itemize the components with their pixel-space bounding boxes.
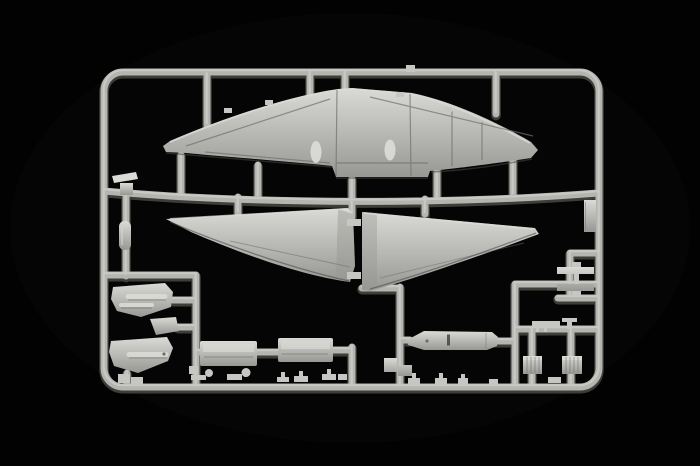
box-right-top-face [562, 356, 582, 360]
belly-panel: Long belly panel [407, 331, 498, 350]
door-lower-ridge [127, 352, 169, 357]
box-part-left: Ribbed box part (left) [523, 356, 542, 374]
left-block-part [120, 183, 133, 195]
box-part-right: Ribbed box part (right) [562, 356, 582, 374]
sprue-photo: Sprue frame and runners Runner junction … [0, 0, 700, 466]
flap-right-highlight [281, 341, 330, 349]
flap-right: Rectangular flap part (right) [278, 338, 333, 362]
flap-left: Rectangular flap part (left) [200, 341, 257, 366]
belly-panel-surface [407, 331, 498, 350]
nacelle-left: Engine nacelle fairing (left) [311, 141, 322, 163]
photo-stage: Sprue frame and runners Runner junction … [0, 0, 700, 466]
flap-left-highlight [203, 344, 254, 352]
door-lower-hole [162, 352, 165, 355]
rail-fitting: Rail-mounted strip part [584, 200, 596, 232]
right-lower-wing-root-shade [362, 212, 377, 290]
nacelle-right: Engine nacelle fairing (right) [385, 140, 396, 161]
rail-nub: Runner junction nub [406, 65, 415, 72]
left-bead-part [119, 221, 131, 250]
belly-panel-slot [447, 335, 450, 346]
belly-panel-hole [425, 339, 428, 342]
